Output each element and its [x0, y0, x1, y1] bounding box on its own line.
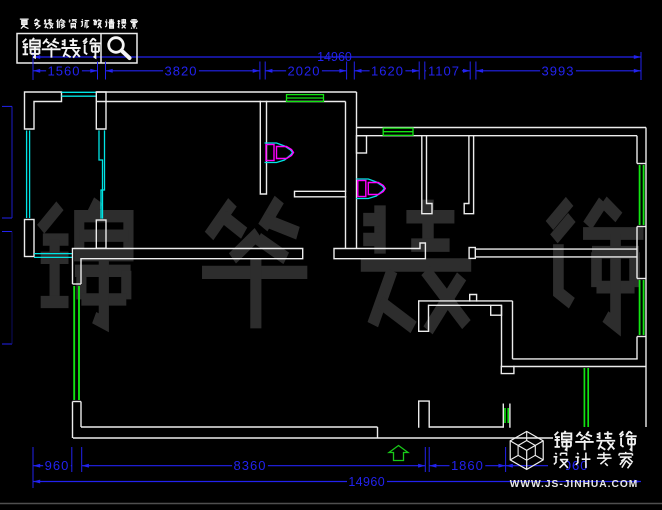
svg-text:8360: 8360 — [234, 458, 267, 473]
svg-text:2020: 2020 — [288, 63, 321, 78]
svg-text:1860: 1860 — [451, 458, 484, 473]
svg-text:1620: 1620 — [371, 63, 404, 78]
svg-text:WWW.JS-JINHUA.COM: WWW.JS-JINHUA.COM — [510, 479, 639, 490]
svg-text:1107: 1107 — [428, 63, 460, 78]
svg-text:1560: 1560 — [48, 63, 81, 78]
svg-text:960: 960 — [45, 458, 70, 473]
svg-text:3820: 3820 — [165, 63, 198, 78]
svg-text:14960: 14960 — [348, 475, 385, 489]
svg-text:3993: 3993 — [542, 63, 575, 78]
